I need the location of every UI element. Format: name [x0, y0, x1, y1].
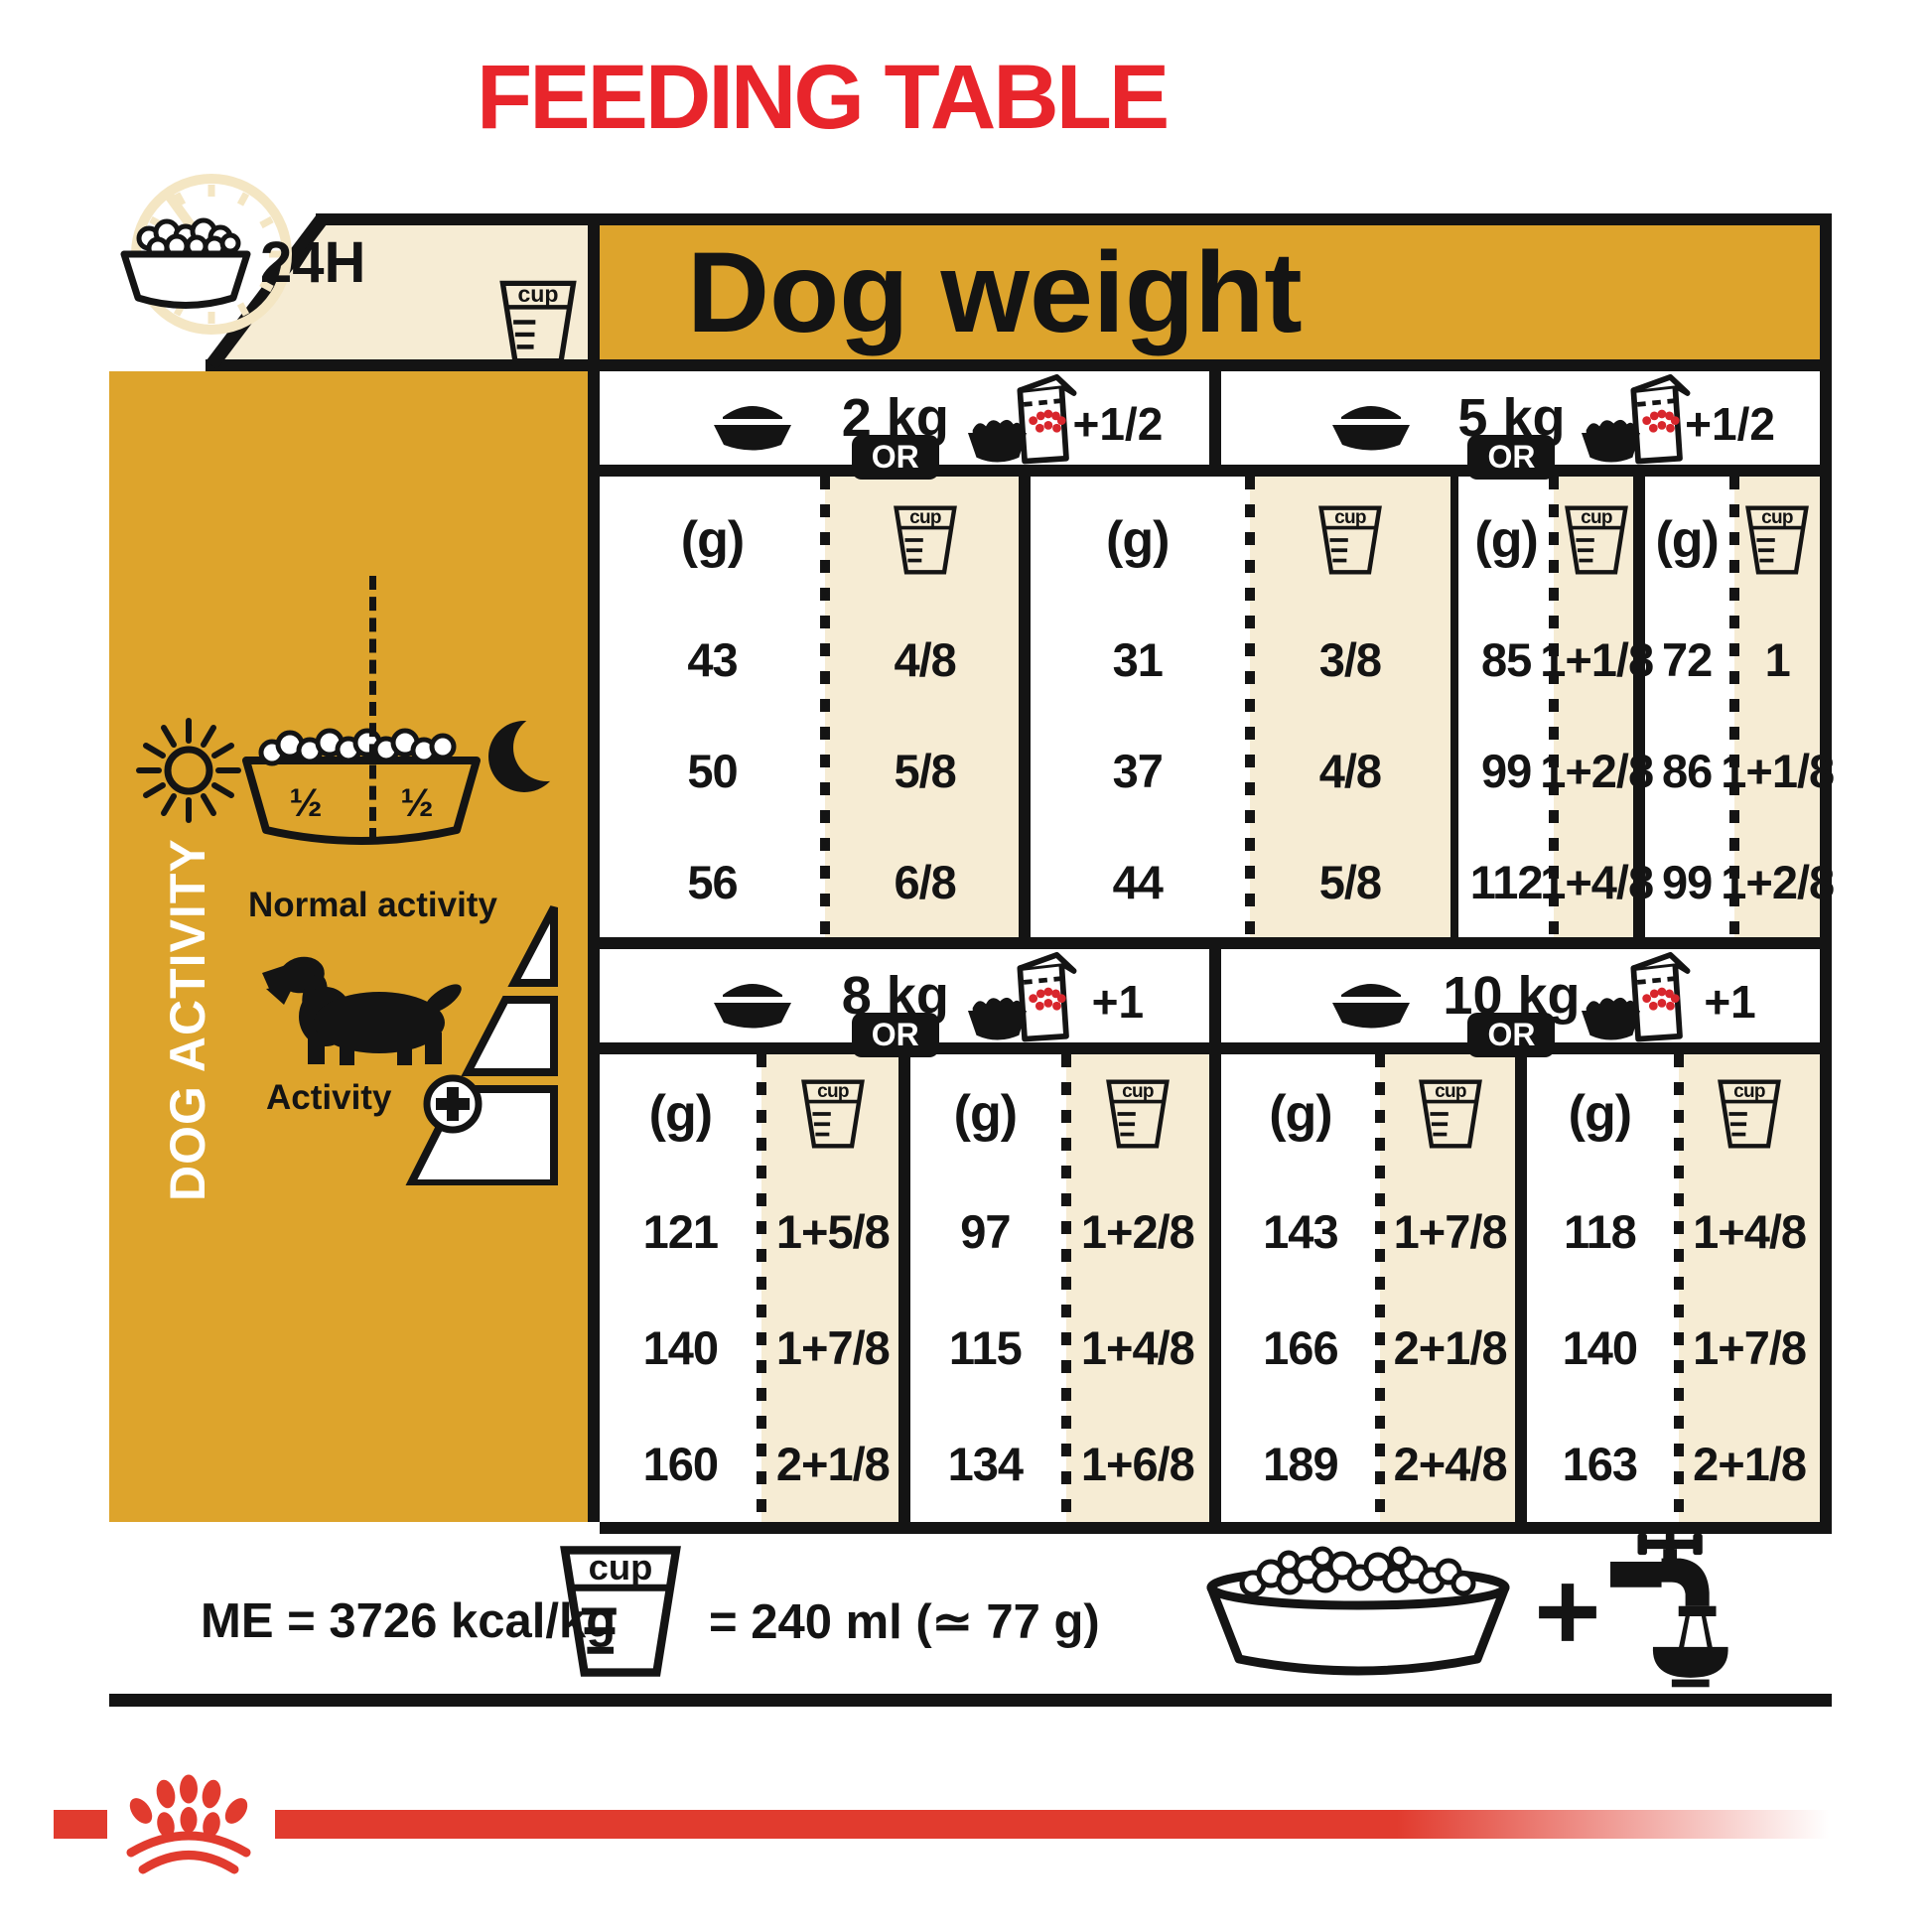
- wet-cup-value: 1+1/8: [1734, 715, 1820, 826]
- section-divider: [1450, 477, 1458, 937]
- weight-header-10kg: 10 kg OR +1: [1221, 949, 1820, 1042]
- grams-col-header: (g): [1639, 477, 1734, 604]
- wet-grams-value: 31: [1025, 604, 1250, 715]
- dry-grams-value: 160: [600, 1406, 761, 1522]
- water-tap-bowl-icon: [1598, 1528, 1743, 1693]
- half-portion-night-label: ½: [400, 781, 433, 825]
- grams-col-header: (g): [1520, 1054, 1679, 1173]
- measuring-cup-icon: [1105, 1077, 1171, 1151]
- dry-cup-value: 5/8: [825, 715, 1025, 826]
- royal-canin-paw-logo: [111, 1773, 266, 1880]
- weight-header-2kg: 2 kg OR +1/2: [600, 371, 1209, 465]
- cup-col-header: [1380, 1054, 1521, 1173]
- section-10kg-data: (g) (g) 143 1+7/8 118 1+4/8 166 2+1/8 14…: [1221, 1054, 1820, 1522]
- activity-label: Activity: [266, 1078, 391, 1118]
- dry-cup-value: 1+4/8: [1554, 826, 1639, 937]
- brand-stripe-right: [275, 1810, 1877, 1839]
- kibble-bowl-icon: [1325, 971, 1417, 1031]
- dry-cup-value: 1+7/8: [1380, 1173, 1521, 1290]
- grams-col-header: (g): [1025, 477, 1250, 604]
- dry-cup-value: 1+7/8: [761, 1290, 904, 1406]
- feeding-table: 24H Dog weight: [109, 169, 1832, 1534]
- or-badge: OR: [852, 435, 939, 480]
- or-badge: OR: [852, 1013, 939, 1057]
- wet-cup-value: 1: [1734, 604, 1820, 715]
- dry-grams-value: 43: [600, 604, 825, 715]
- dry-grams-value: 56: [600, 826, 825, 937]
- dry-grams-value: 140: [600, 1290, 761, 1406]
- weight-header-row-1: 2 kg OR +1/2 5 kg OR +1/2: [600, 371, 1820, 477]
- dry-cup-value: 1+5/8: [761, 1173, 904, 1290]
- wet-cup-value: 1+6/8: [1066, 1406, 1209, 1522]
- wet-grams-value: 118: [1520, 1173, 1679, 1290]
- measuring-cup-icon: [1744, 503, 1810, 577]
- wet-cup-value: 3/8: [1250, 604, 1449, 715]
- dry-grams-value: 143: [1221, 1173, 1380, 1290]
- table-corner: 24H: [109, 169, 600, 371]
- section-divider: [1209, 949, 1221, 1042]
- half-portion-day-label: ½: [289, 781, 322, 825]
- dog-activity-panel: ½ ½ DOG ACTIVITY Normal activity: [109, 371, 600, 1522]
- dry-cup-value: 4/8: [825, 604, 1025, 715]
- wet-grams-value: 115: [904, 1290, 1066, 1406]
- cup-col-header: [761, 1054, 904, 1173]
- measuring-cup-icon: [893, 503, 958, 577]
- kibble-bowl-icon: [707, 971, 798, 1031]
- wet-cup-value: 1+2/8: [1066, 1173, 1209, 1290]
- grams-col-header: (g): [1458, 477, 1554, 604]
- sun-icon: [131, 713, 246, 828]
- or-badge: OR: [1467, 435, 1555, 480]
- cup-col-header: [825, 477, 1025, 604]
- wet-grams-value: 37: [1025, 715, 1250, 826]
- kibble-bowl-icon: [1325, 393, 1417, 453]
- dry-grams-value: 189: [1221, 1406, 1380, 1522]
- data-row-1: (g) (g) 43 4/8 31 3/8 50 5/8 37 4/8 56 6…: [600, 477, 1820, 949]
- moon-icon: [484, 715, 568, 798]
- wet-cup-value: 1+4/8: [1679, 1173, 1820, 1290]
- weight-header-row-2: 8 kg OR +1 10 kg OR +1: [600, 949, 1820, 1054]
- or-badge: OR: [1467, 1013, 1555, 1057]
- weight-header-8kg: 8 kg OR +1: [600, 949, 1209, 1042]
- section-5kg-data: (g) (g) 85 1+1/8 72 1 99 1+2/8 86 1+1/8 …: [1458, 477, 1820, 937]
- energy-value: ME = 3726 kcal/kg: [201, 1593, 616, 1649]
- footer: ME = 3726 kcal/kg = 240 ml (≃ 77 g): [109, 1534, 1832, 1693]
- measuring-cup-icon: [1317, 503, 1383, 577]
- grams-col-header: (g): [600, 1054, 761, 1173]
- wet-pouch-bowl-icon: [1577, 951, 1704, 1050]
- bottom-rule: [109, 1694, 1832, 1707]
- cup-col-header: [1679, 1054, 1820, 1173]
- wet-cup-value: 1+2/8: [1734, 826, 1820, 937]
- 24h-label: 24H: [260, 230, 365, 295]
- wet-cup-value: 5/8: [1250, 826, 1449, 937]
- section-divider: [1209, 371, 1221, 465]
- dry-grams-value: 121: [600, 1173, 761, 1290]
- dry-cup-value: 6/8: [825, 826, 1025, 937]
- brand-stripe-left: [54, 1810, 107, 1839]
- wet-pouch-bowl-icon: [963, 951, 1090, 1050]
- measuring-cup-icon: [558, 1538, 683, 1685]
- dry-cup-value: 1+2/8: [1554, 715, 1639, 826]
- cup-col-header: [1066, 1054, 1209, 1173]
- dry-cup-value: 2+1/8: [1380, 1290, 1521, 1406]
- dry-grams-value: 166: [1221, 1290, 1380, 1406]
- cup-col-header: [1554, 477, 1639, 604]
- measuring-cup-icon: [800, 1077, 866, 1151]
- half-half-bowl-icon: ½ ½: [236, 725, 486, 854]
- measuring-cup-icon: [1418, 1077, 1483, 1151]
- measuring-cup-icon: [1717, 1077, 1782, 1151]
- page-title: FEEDING TABLE: [477, 46, 1167, 150]
- dry-cup-value: 2+4/8: [1380, 1406, 1521, 1522]
- wet-cup-value: 1+7/8: [1679, 1290, 1820, 1406]
- plus-icon: [1535, 1580, 1600, 1645]
- data-row-2: (g) (g) 121 1+5/8 97 1+2/8 140 1+7/8 115…: [600, 1054, 1820, 1522]
- dog-weight-band: Dog weight: [600, 213, 1832, 371]
- section-2kg-data: (g) (g) 43 4/8 31 3/8 50 5/8 37 4/8 56 6…: [600, 477, 1450, 937]
- kibble-bowl-icon: [1193, 1536, 1523, 1687]
- dry-grams-value: 50: [600, 715, 825, 826]
- grams-col-header: (g): [904, 1054, 1066, 1173]
- wet-grams-value: 44: [1025, 826, 1250, 937]
- grams-col-header: (g): [1221, 1054, 1380, 1173]
- cup-equivalence: = 240 ml (≃ 77 g): [709, 1593, 1100, 1650]
- wet-grams-value: 97: [904, 1173, 1066, 1290]
- grams-col-header: (g): [600, 477, 825, 604]
- wet-pouch-bowl-icon: [963, 373, 1090, 473]
- section-divider: [1209, 1054, 1221, 1522]
- dry-cup-value: 1+1/8: [1554, 604, 1639, 715]
- dog-activity-vertical-label: DOG ACTIVITY: [159, 844, 210, 1201]
- wet-cup-value: 1+4/8: [1066, 1290, 1209, 1406]
- bowl-split-dashed-line: [369, 576, 376, 842]
- kibble-bowl-icon: [707, 393, 798, 453]
- cup-col-header: [1734, 477, 1820, 604]
- wet-grams-value: 140: [1520, 1290, 1679, 1406]
- wet-portion-label: +1/2: [1685, 397, 1775, 451]
- wet-grams-value: 134: [904, 1406, 1066, 1522]
- weight-header-5kg: 5 kg OR +1/2: [1221, 371, 1820, 465]
- dry-cup-value: 2+1/8: [761, 1406, 904, 1522]
- dog-weight-title: Dog weight: [687, 227, 1303, 358]
- wet-cup-value: 4/8: [1250, 715, 1449, 826]
- kibble-bowl-icon: [124, 220, 247, 306]
- activity-plus-icon: [421, 1072, 484, 1136]
- section-8kg-data: (g) (g) 121 1+5/8 97 1+2/8 140 1+7/8 115…: [600, 1054, 1209, 1522]
- feeding-table-page: cup: [0, 0, 1932, 1932]
- wet-portion-label: +1/2: [1072, 397, 1163, 451]
- wet-portion-label: +1: [1704, 975, 1755, 1029]
- weight-data-region: 2 kg OR +1/2 5 kg OR +1/2: [600, 371, 1832, 1534]
- wet-cup-value: 2+1/8: [1679, 1406, 1820, 1522]
- wet-portion-label: +1: [1092, 975, 1144, 1029]
- activity-triangle-icon: [393, 903, 564, 1185]
- wet-grams-value: 163: [1520, 1406, 1679, 1522]
- cup-col-header: [1250, 477, 1449, 604]
- measuring-cup-icon: [1564, 503, 1629, 577]
- wet-grams-value: 72: [1639, 604, 1734, 715]
